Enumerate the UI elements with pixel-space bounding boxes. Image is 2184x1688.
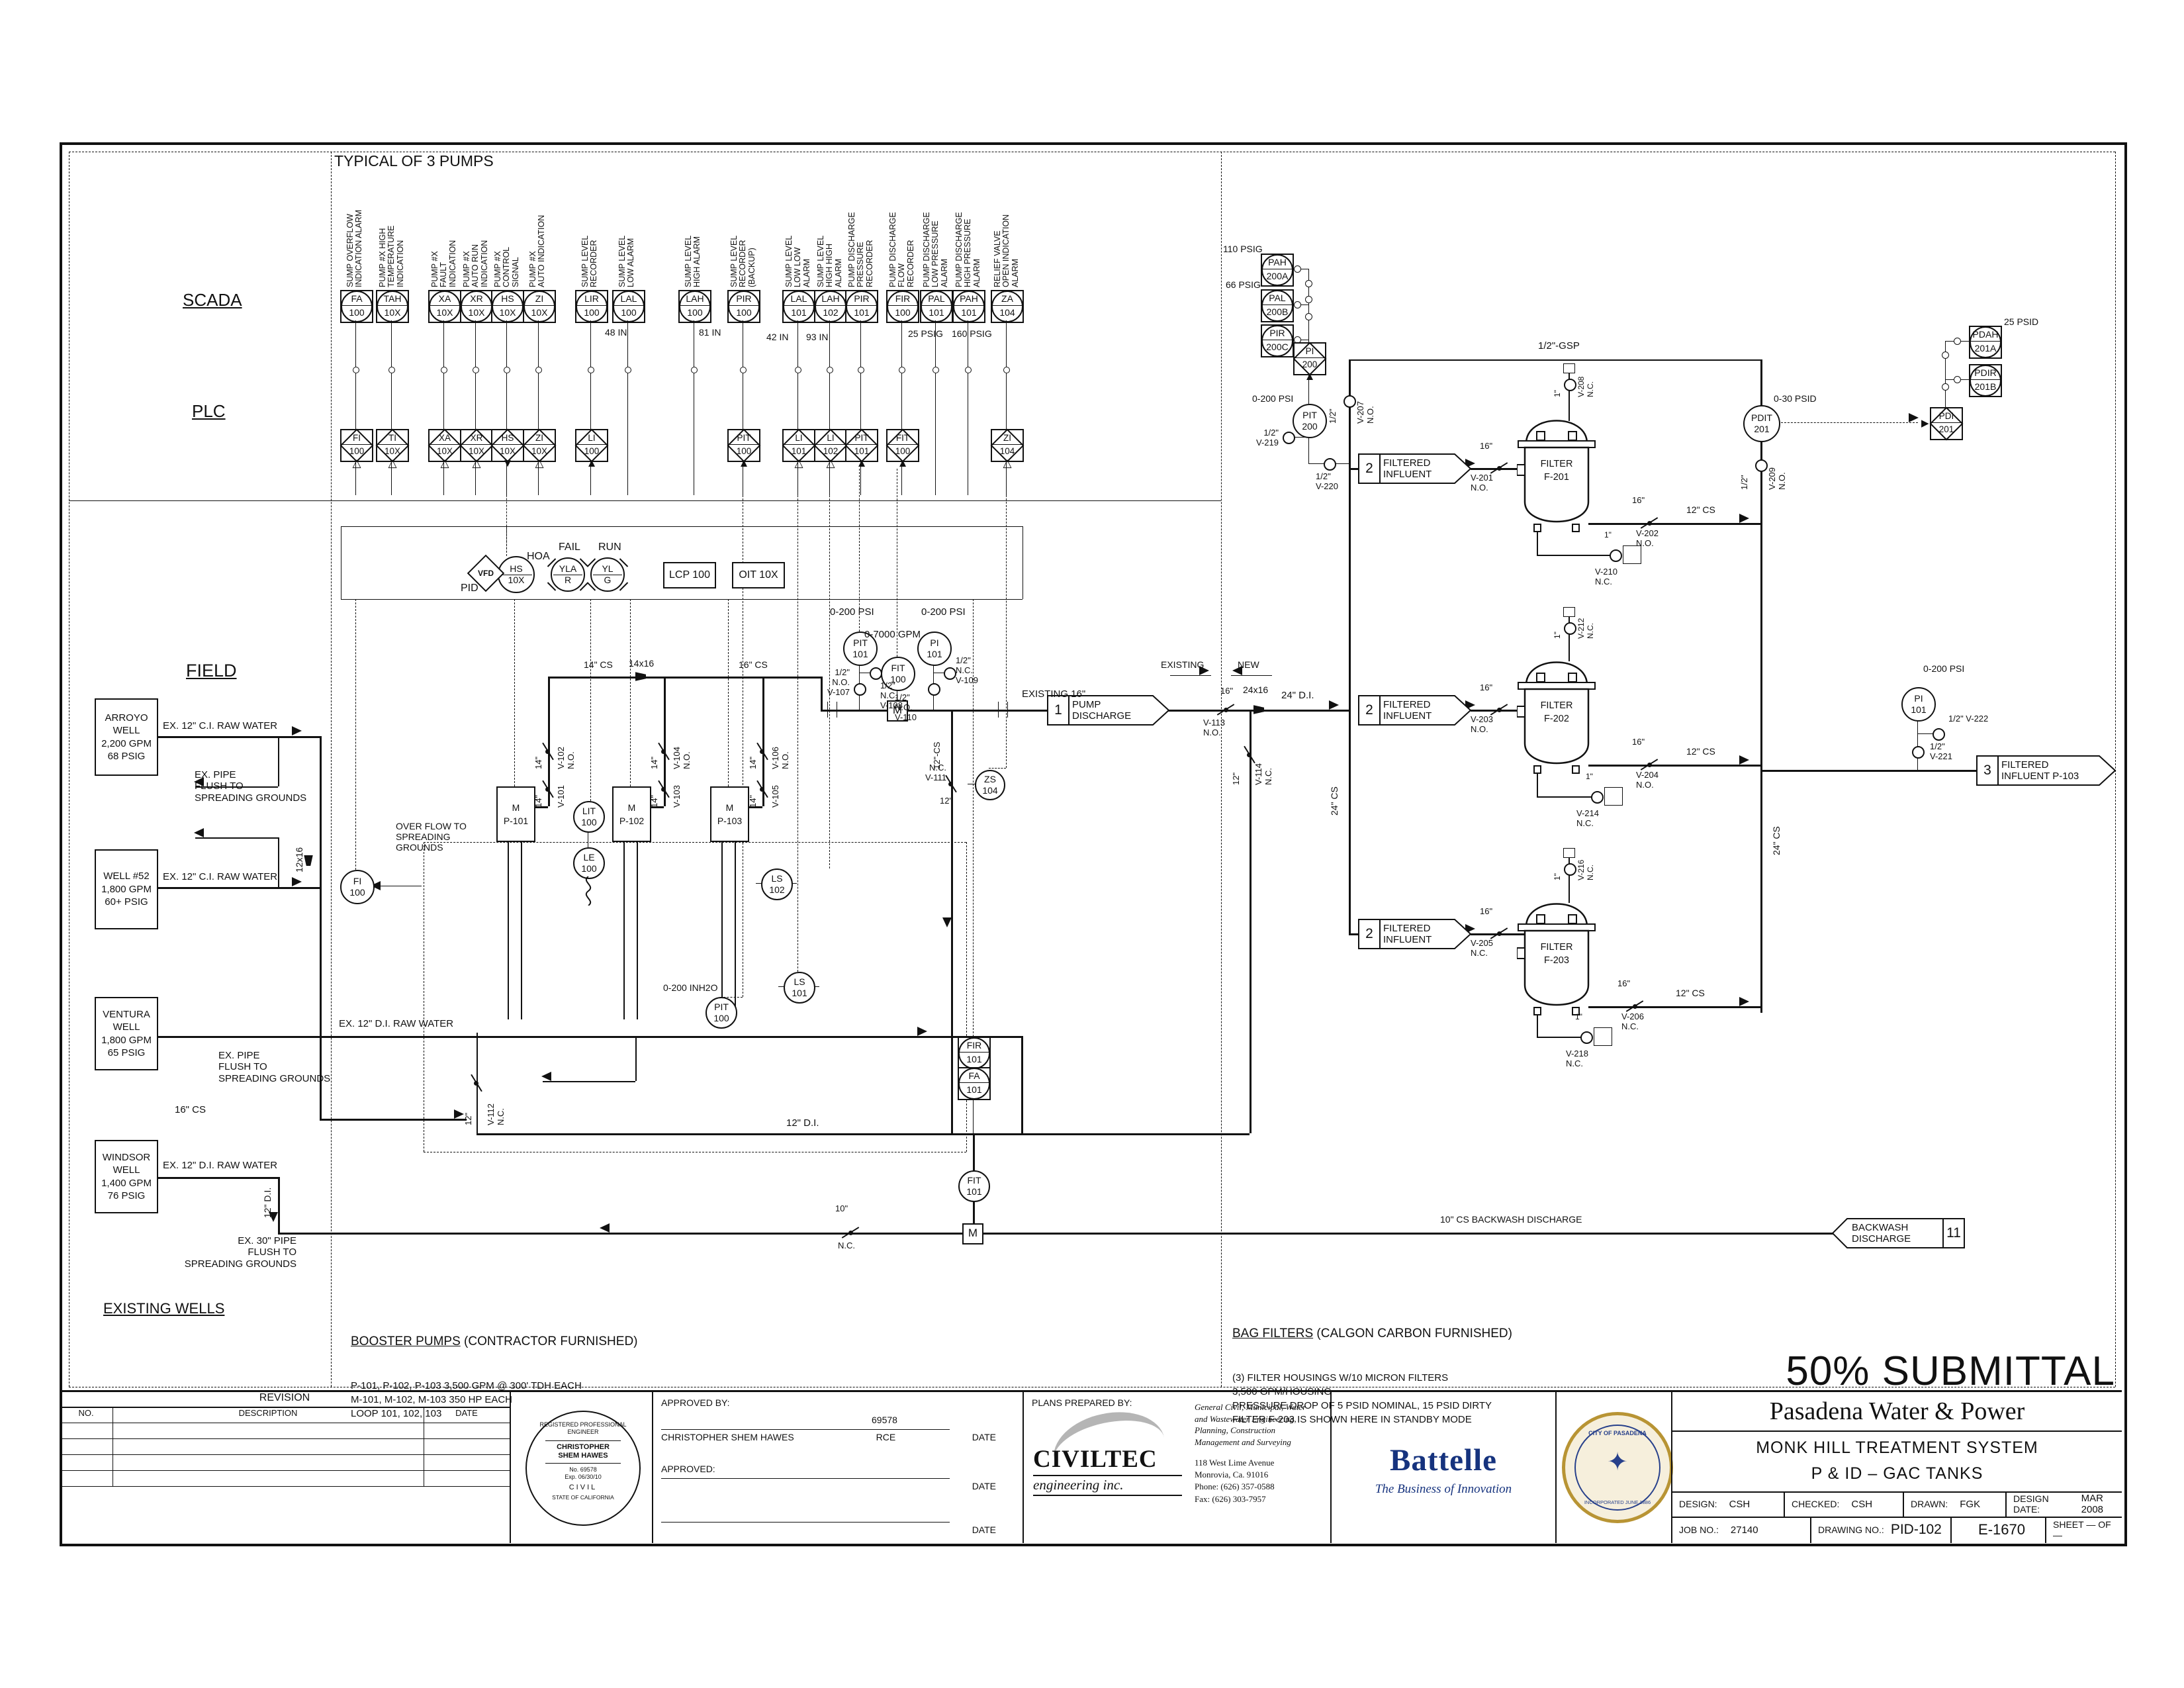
firm-address: 118 West Lime Avenue Monrovia, Ca. 91016… [1195, 1457, 1275, 1505]
field-instrument: PIT 200 [1293, 404, 1327, 438]
flow-arrow-icon [917, 1027, 927, 1036]
shared-display-instrument: PDAH 201A [1969, 326, 2002, 359]
line [521, 839, 522, 1019]
junction-node-icon [827, 367, 833, 373]
annotation-text: V-106 N.O. [770, 747, 790, 769]
io-tag: HS [492, 433, 523, 443]
instrument-number: 200C [1262, 342, 1293, 352]
io-number: 100 [341, 446, 372, 456]
annotation-text: V-203 N.O. [1471, 714, 1493, 734]
instrument-tag: PAH [1262, 257, 1293, 267]
instrument-number: 100 [349, 887, 365, 899]
junction-node-icon [858, 367, 864, 373]
instrument-tag: PAH [954, 293, 984, 304]
valve-icon [1324, 458, 1336, 471]
signal-node-icon [1942, 383, 1949, 391]
io-number: 10X [524, 446, 555, 456]
annotation-text: 12x16 [294, 847, 304, 872]
io-number: 200 [1295, 359, 1325, 369]
annotation-text: V-101 [556, 785, 566, 808]
line [508, 839, 509, 1019]
line [1250, 710, 1251, 1133]
instrument-tag: LAH [815, 293, 846, 304]
instrument-tag: LE [583, 852, 594, 864]
valve-icon [1564, 379, 1576, 391]
annotation-text: 10" [835, 1203, 848, 1213]
plc-io-symbol: FIT 100 ▲ [886, 429, 919, 462]
field-instrument: LE 100 [573, 847, 605, 879]
instrument-description: PUMP DISCHARGE PRESSURE RECORDER [848, 212, 874, 287]
scada-instrument-bubble: HS 10X PUMP #X CONTROL SIGNAL [491, 290, 524, 323]
instrument-tag: PAL [921, 293, 952, 304]
annotation-text: 0-200 PSI [830, 606, 874, 618]
design-label: DESIGN: [1679, 1499, 1717, 1509]
instrument-description: SUMP LEVEL RECORDER [581, 236, 599, 287]
field-instrument: LS 101 [784, 972, 815, 1004]
flow-arrow-icon [292, 877, 302, 886]
line [424, 842, 966, 843]
valve-icon: M [962, 1223, 983, 1244]
instrument-tag: FA [959, 1070, 989, 1081]
annotation-text: V-102 N.O. [556, 747, 576, 769]
valve-icon [1594, 1027, 1612, 1046]
io-direction-icon: ▲ [846, 457, 877, 469]
instrument-number: 100 [576, 307, 607, 318]
io-number: 10X [430, 446, 460, 456]
io-number: 201 [1931, 424, 1962, 434]
signal-node-icon [1305, 313, 1312, 320]
annotation-text: V-218 N.C. [1566, 1049, 1588, 1068]
plc-io-symbol: PIT 101 ▲ [845, 429, 878, 462]
rce-number: 69578 [872, 1415, 897, 1425]
instrument-description: PUMP #X AUTO INDICATION [529, 215, 547, 287]
instrument-number: 10X [524, 307, 555, 318]
annotation-text: 12" CS [1676, 988, 1705, 998]
revision-block: REVISION NO. DESCRIPTION DATE [60, 1392, 510, 1543]
annotation-text: V-205 N.C. [1471, 938, 1493, 958]
engineer-name: CHRISTOPHER SHEM HAWES [661, 1432, 794, 1442]
scada-instrument-bubble: LIR 100 SUMP LEVEL RECORDER [575, 290, 608, 323]
annotation-text: HOA [527, 551, 550, 563]
signal-node-icon [1942, 352, 1949, 359]
scada-instrument-bubble: PIR 100 SUMP LEVEL RECORDER (BACKUP) [727, 290, 760, 323]
annotation-text: V-210 N.C. [1595, 567, 1617, 586]
firm-services: General Civil, Municipal, Water and Wast… [1195, 1401, 1306, 1448]
instrument-tag: HS [492, 293, 523, 304]
valve-icon [1283, 432, 1295, 444]
rce-label: RCE [876, 1432, 896, 1442]
annotation-text: 1/2" [1739, 475, 1749, 490]
annotation-text: V-202 N.O. [1636, 528, 1659, 548]
valve-icon [1564, 622, 1576, 635]
annotation-text: 160 PSIG [952, 328, 992, 339]
junction-node-icon [899, 367, 905, 373]
date-label: DATE [972, 1432, 996, 1442]
line [477, 1133, 1250, 1135]
annotation-text: EX. PIPE FLUSH TO SPREADING GROUNDS [218, 1050, 330, 1084]
filter-name: FILTER F-202 [1529, 700, 1584, 726]
annotation-text: V-212 N.C. [1577, 618, 1596, 639]
connector-number: 2 [1359, 920, 1381, 948]
junction-node-icon [588, 367, 594, 373]
connector-number: 11 [1942, 1219, 1964, 1247]
scada-instrument-bubble: LAL 100 SUMP LEVEL LOW ALARM [612, 290, 645, 323]
annotation-text: 24" CS [1329, 786, 1340, 816]
valve-icon [854, 683, 866, 696]
annotation-text: V-114 N.C. [1253, 763, 1273, 785]
instrument-description: PUMP #X HIGH TEMPERATURE INDICATION [379, 225, 405, 287]
connector-number: 1 [1048, 696, 1069, 724]
design-date-value: MAR 2008 [2081, 1493, 2122, 1515]
line [1588, 523, 1760, 525]
line [1537, 1037, 1582, 1038]
instrument-number: 101 [966, 1186, 981, 1198]
instrument-tag: ZS [984, 774, 996, 786]
instrument-number: 200B [1262, 306, 1293, 317]
field-instrument: LIT 100 [573, 801, 605, 833]
line [1006, 469, 1007, 768]
signal-node-icon [1294, 301, 1301, 308]
line [1760, 770, 1979, 772]
scada-instrument-bubble: XA 10X PUMP #X FAULT INDICATION [428, 290, 461, 323]
line [721, 839, 723, 1019]
annotation-text: EX. PIPE FLUSH TO SPREADING GROUNDS [195, 769, 306, 804]
line [1778, 422, 1918, 423]
scada-instrument-bubble: FIR 100 PUMP DISCHARGE FLOW RECORDER [886, 290, 919, 323]
annotation-text: V-214 N.C. [1576, 808, 1599, 828]
scada-instrument-bubble: FA 100 SUMP OVERFLOW INDICATION ALARM [340, 290, 373, 323]
instrument-number: R [565, 575, 571, 586]
instrument-tag: ZI [524, 293, 555, 304]
instrument-description: SUMP OVERFLOW INDICATION ALARM [346, 210, 364, 287]
annotation-text: 12" CS [1686, 746, 1715, 757]
line [1760, 359, 1762, 1013]
line [637, 839, 638, 1019]
approved-by-block: APPROVED BY: 69578 CHRISTOPHER SHEM HAWE… [652, 1392, 1023, 1543]
signal-node-icon [1305, 280, 1312, 287]
line [69, 152, 69, 1387]
note-heading-suffix: (CALGON CARBON FURNISHED) [1313, 1327, 1512, 1340]
scada-instrument-bubble: TAH 10X PUMP #X HIGH TEMPERATURE INDICAT… [376, 290, 409, 323]
scada-instrument-bubble: ZI 10X PUMP #X AUTO INDICATION [523, 290, 556, 323]
io-direction-icon: △ [524, 457, 555, 469]
valve-icon [1563, 848, 1575, 858]
junction-node-icon [625, 367, 631, 373]
instrument-number: 101 [921, 307, 952, 318]
plc-io-symbol: ZI 10X △ [523, 429, 556, 462]
io-number: 104 [992, 446, 1023, 456]
io-direction-icon: △ [377, 457, 408, 469]
instrument-tag: FI [353, 876, 361, 888]
approved-label: APPROVED: [661, 1464, 715, 1474]
annotation-text: V-208 N.C. [1577, 377, 1596, 397]
flow-arrow-icon [1329, 700, 1339, 710]
approved-by-label: APPROVED BY: [661, 1397, 729, 1408]
line [1221, 152, 1222, 1387]
line [635, 1036, 637, 1081]
instrument-tag: FA [341, 293, 372, 304]
line [735, 839, 736, 1019]
instrument-number: 100 [729, 307, 759, 318]
junction-node-icon [473, 367, 479, 373]
annotation-text: 1/2" V-219 [1244, 428, 1279, 447]
valve-icon [841, 1225, 860, 1240]
annotation-text: 16" CS [175, 1104, 206, 1115]
valve-icon [1912, 746, 1925, 759]
plc-io-symbol: FI 100 △ [340, 429, 373, 462]
instrument-tag: PAL [1262, 293, 1293, 303]
annotation-text: 16" [1480, 682, 1492, 692]
line [1166, 710, 1221, 712]
flow-arrow-icon [1739, 514, 1749, 523]
battelle-tagline: The Business of Innovation [1332, 1482, 1555, 1497]
line [1349, 933, 1358, 935]
annotation-text: 16" [1480, 441, 1492, 451]
annotation-text: 12" D.I. [786, 1117, 819, 1129]
scada-instrument-bubble: LAH 100 SUMP LEVEL HIGH ALARM [678, 290, 711, 323]
project-name: MONK HILL TREATMENT SYSTEM [1756, 1435, 2038, 1461]
annotation-text: 0-30 PSID [1774, 393, 1817, 404]
scada-instrument-bubble: XR 10X PUMP #X AUTO RUN INDICATION [460, 290, 493, 323]
connector-label: FILTERED INFLUENT P-103 [2001, 755, 2079, 786]
io-direction-icon: △ [461, 457, 492, 469]
line [548, 677, 821, 679]
well-box: VENTURA WELL 1,800 GPM 65 PSIG [95, 997, 158, 1070]
io-number: 100 [887, 446, 918, 456]
well-box: WINDSOR WELL 1,400 GPM 76 PSIG [95, 1140, 158, 1213]
annotation-text: 16" [1632, 495, 1645, 505]
instrument-number: 101 [954, 307, 984, 318]
sheet-of: SHEET — OF — [2046, 1517, 2122, 1543]
instrument-tag: PIR [729, 293, 759, 304]
annotation-text: 14" [748, 795, 758, 808]
annotation-text: N.C. [838, 1241, 855, 1250]
flow-arrow-icon [600, 1223, 610, 1233]
instrument-tag: ZA [992, 293, 1023, 304]
line [1023, 526, 1023, 599]
instrument-tag: PDIT [1751, 412, 1772, 424]
line [1021, 1036, 1023, 1133]
signal-node-icon [1305, 296, 1312, 303]
junction-node-icon [691, 367, 698, 373]
drawn-value: FGK [1960, 1499, 1980, 1510]
annotation-text: V-206 N.C. [1621, 1011, 1644, 1031]
city-seal-block: CITY OF PASADENA ✦ INCORPORATED JUNE 188… [1555, 1392, 1671, 1543]
signal-node-icon [1954, 338, 1961, 345]
line [989, 768, 1006, 769]
line [278, 837, 279, 887]
instrument-description: SUMP LEVEL HIGH HIGH ALARM [817, 236, 843, 287]
instrument-tag: FIR [887, 293, 918, 304]
battelle-block: Battelle The Business of Innovation [1330, 1392, 1555, 1543]
instrument-number: 100 [581, 817, 596, 829]
instrument-number: 101 [959, 1054, 989, 1064]
io-number: 102 [815, 446, 846, 456]
io-direction-icon: △ [341, 457, 372, 469]
annotation-text: 1" [1553, 873, 1563, 880]
instrument-number: 100 [341, 307, 372, 318]
line [424, 842, 424, 1152]
date-label: DATE [972, 1524, 996, 1535]
annotation-text: 12" [463, 1113, 473, 1125]
annotation-text: 14" [533, 795, 543, 808]
annotation-text: V-207 N.O. [1355, 401, 1375, 424]
plc-io-symbol: ZI 104 △ [991, 429, 1024, 462]
connector-label: FILTERED INFLUENT [1383, 453, 1432, 484]
panel-box: LCP 100 [663, 562, 716, 588]
instrument-tag: PI [930, 637, 938, 649]
instrument-description: SUMP LEVEL LOW ALARM [618, 236, 636, 287]
line [630, 599, 631, 786]
note-heading: BOOSTER PUMPS [351, 1335, 461, 1348]
annotation-text: V-209 N.O. [1767, 467, 1787, 490]
pump-box: M P-102 [612, 786, 651, 842]
scada-instrument-bubble: PAH 101 PUMP DISCHARGE HIGH PRESSURE ALA… [952, 290, 985, 323]
line [1945, 341, 1946, 407]
annotation-text: 1" [1553, 390, 1563, 397]
seal-state: STATE OF CALIFORNIA [527, 1494, 639, 1501]
well-box: WELL #52 1,800 GPM 60+ PSIG [95, 849, 158, 929]
annotation-text: PID [461, 583, 478, 595]
annotation-text: PLC [192, 401, 226, 421]
line [1349, 468, 1358, 470]
instrument-tag: FIT [891, 663, 905, 675]
io-tag: ZI [524, 433, 555, 443]
instrument-number: 201A [1970, 343, 2001, 353]
annotation-text: 14x16 [629, 658, 654, 669]
connector-number: 3 [1978, 757, 1999, 784]
instrument-number: 101 [1911, 704, 1926, 716]
city-seal-top-text: CITY OF PASADENA [1565, 1430, 1670, 1436]
annotation-text: 1/2" [1328, 408, 1338, 424]
line [1349, 359, 1760, 361]
instrument-tag: XA [430, 293, 460, 304]
annotation-text: V-104 N.O. [672, 747, 692, 769]
instrument-tag: XR [461, 293, 492, 304]
line [1537, 555, 1611, 556]
scada-instrument-bubble: PAL 101 PUMP DISCHARGE LOW PRESSURE ALAR… [920, 290, 953, 323]
annotation-text: 110 PSIG [1223, 244, 1263, 254]
annotation-text: TYPICAL OF 3 PUMPS [334, 152, 494, 170]
instrument-number: G [604, 575, 612, 586]
io-tag: ZI [992, 433, 1023, 443]
annotation-text: 14" [533, 757, 543, 769]
annotation-text: V-113 N.O. [1203, 718, 1225, 737]
title-block: REVISION NO. DESCRIPTION DATE REGISTERED… [60, 1390, 2122, 1543]
instrument-number: 10X [377, 307, 408, 318]
io-direction-icon: △ [784, 457, 814, 469]
instrument-tag: LAH [680, 293, 710, 304]
annotation-text: 0-7000 GPM [864, 629, 921, 640]
line [743, 469, 743, 997]
instrument-number: 101 [852, 649, 868, 661]
line [156, 1036, 1021, 1038]
shared-display-instrument: PAH 200A [1261, 254, 1294, 287]
io-direction-icon: △ [992, 457, 1023, 469]
annotation-text: 12" [1231, 773, 1241, 785]
annotation-text: 14" [748, 757, 758, 769]
annotation-text: 81 IN [699, 327, 721, 338]
plc-io-symbol: TI 10X △ [376, 429, 409, 462]
annotation-text: 1/2" N.C. V-109 [956, 655, 978, 685]
instrument-number: 200A [1262, 271, 1293, 281]
line [1917, 719, 1918, 770]
annotation-text: EXISTING WELLS [103, 1300, 224, 1317]
instrument-number: 101 [784, 307, 814, 318]
annotation-text: 12" CS [1686, 504, 1715, 515]
annotation-text: 10" CS BACKWASH DISCHARGE [1440, 1214, 1582, 1225]
signal-node-icon [1294, 265, 1301, 273]
io-tag: TI [377, 433, 408, 443]
line [69, 500, 1221, 501]
instrument-number: 201 [1754, 424, 1769, 436]
annotation-text: 66 PSIG [1226, 279, 1261, 290]
valve-icon [1563, 607, 1575, 617]
io-direction-icon: ▲ [729, 457, 759, 469]
io-direction-icon: △ [815, 457, 846, 469]
line [341, 526, 1023, 527]
annotation-text: 24x16 [1243, 684, 1268, 695]
valve-icon [928, 683, 940, 696]
annotation-text: 0-200 PSI [1252, 393, 1293, 404]
io-tag: PDI [1931, 411, 1962, 421]
line [156, 887, 320, 889]
annotation-text: V-103 [672, 785, 682, 808]
plc-io-symbol: XR 10X △ [460, 429, 493, 462]
valve-icon [1343, 395, 1356, 408]
annotation-text: V-201 N.O. [1471, 473, 1493, 492]
line [278, 1177, 280, 1233]
instrument-description: PUMP DISCHARGE HIGH PRESSURE ALARM [955, 212, 981, 287]
pid-drawing-sheet: MM FA 100 SUMP OVERFLOW INDICATION ALARM… [0, 0, 2184, 1688]
junction-node-icon [353, 367, 359, 373]
offpage-connector-flag: 2 FILTERED INFLUENT [1358, 919, 1472, 949]
annotation-text: 1" [1604, 531, 1612, 540]
civiltec-name: CIVILTEC [1033, 1445, 1185, 1474]
annotation-text: 25 PSID [2004, 316, 2038, 327]
io-number: 100 [576, 446, 607, 456]
scada-instrument-bubble: LAH 102 SUMP LEVEL HIGH HIGH ALARM [814, 290, 847, 323]
flow-arrow-icon [1909, 413, 1919, 422]
junction-node-icon [1003, 367, 1010, 373]
line [966, 842, 967, 1152]
valve-icon [1623, 545, 1641, 564]
offpage-connector-flag: 11 BACKWASH DISCHARGE [1832, 1218, 1966, 1248]
plc-io-symbol: XA 10X △ [428, 429, 461, 462]
instrument-number: 10X [430, 307, 460, 318]
revision-col-description: DESCRIPTION [113, 1408, 424, 1418]
line [1537, 796, 1592, 798]
annotation-text: 24" CS [1771, 826, 1782, 855]
sheet-title: P & ID – GAC TANKS [1811, 1461, 1983, 1487]
instrument-number: 104 [982, 785, 997, 797]
instrument-description: SUMP LEVEL HIGH ALARM [684, 236, 702, 287]
annotation-text: 1/2" N.O. V-110 [895, 692, 917, 722]
io-number: 10X [461, 446, 492, 456]
junction-node-icon [441, 367, 447, 373]
line [590, 599, 591, 801]
io-tag: FIT [887, 433, 918, 443]
file-number: E-1670 [1952, 1517, 2046, 1543]
line [973, 1096, 974, 1133]
field-instrument: YLA R [551, 557, 585, 592]
annotation-text: 1" [1586, 773, 1593, 782]
instrument-number: 102 [769, 884, 784, 896]
plc-io-symbol: LI 101 △ [782, 429, 815, 462]
level-element-squiggle-icon [580, 876, 597, 906]
instrument-tag: YLA [559, 563, 576, 575]
line [1231, 675, 1272, 676]
